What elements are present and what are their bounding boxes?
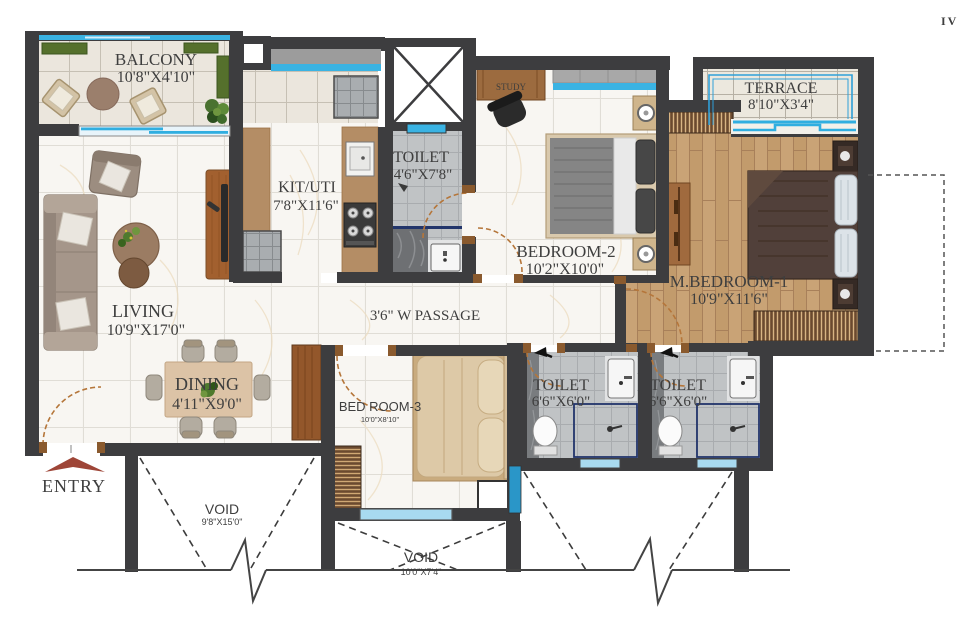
svg-text:3'6" W PASSAGE: 3'6" W PASSAGE — [370, 308, 480, 324]
svg-text:VOID: VOID — [404, 549, 438, 565]
svg-text:TOILET: TOILET — [393, 149, 449, 166]
svg-text:KIT/UTI: KIT/UTI — [278, 179, 336, 196]
svg-text:6'6"X6'0": 6'6"X6'0" — [532, 394, 590, 410]
svg-text:TERRACE: TERRACE — [745, 80, 818, 97]
svg-text:LIVING: LIVING — [112, 301, 174, 321]
svg-text:10'9"X17'0": 10'9"X17'0" — [107, 322, 185, 339]
svg-text:ENTRY: ENTRY — [42, 476, 106, 496]
svg-text:8'10"X3'4": 8'10"X3'4" — [748, 97, 814, 113]
svg-text:4'6"X7'8": 4'6"X7'8" — [394, 167, 452, 183]
svg-text:10'0"X8'10": 10'0"X8'10" — [361, 415, 400, 424]
svg-text:VOID: VOID — [205, 501, 239, 517]
svg-text:4'11"X9'0": 4'11"X9'0" — [172, 396, 242, 413]
svg-text:10'0"X7'4": 10'0"X7'4" — [401, 567, 442, 577]
svg-text:10'2"X10'0": 10'2"X10'0" — [526, 261, 604, 278]
svg-text:TOILET: TOILET — [650, 377, 706, 394]
svg-text:7'8"X11'6": 7'8"X11'6" — [273, 198, 338, 214]
svg-text:BALCONY: BALCONY — [115, 50, 197, 69]
svg-text:10'9"X11'6": 10'9"X11'6" — [690, 291, 768, 308]
svg-text:TOILET: TOILET — [533, 377, 589, 394]
svg-text:DINING: DINING — [175, 374, 239, 394]
svg-text:BED ROOM-3: BED ROOM-3 — [339, 399, 421, 414]
svg-text:6'6"X6'0": 6'6"X6'0" — [649, 394, 707, 410]
svg-text:STUDY: STUDY — [496, 82, 527, 92]
svg-text:IV: IV — [941, 14, 957, 28]
svg-text:M.BEDROOM-1: M.BEDROOM-1 — [670, 272, 789, 291]
svg-text:BEDROOM-2: BEDROOM-2 — [516, 242, 615, 261]
svg-text:9'8"X15'0": 9'8"X15'0" — [202, 517, 243, 527]
svg-text:10'8"X4'10": 10'8"X4'10" — [117, 69, 195, 86]
